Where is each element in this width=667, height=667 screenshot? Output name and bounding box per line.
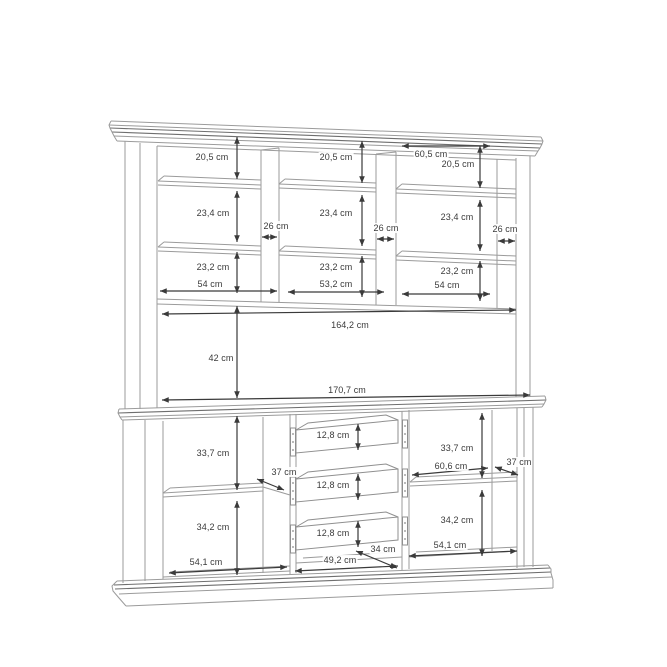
dim-upper-right-width: 54 cm: [433, 280, 460, 290]
dim-lower-left-depth: 37 cm: [270, 467, 297, 477]
dim-lower-left-width: 54,1 cm: [189, 557, 224, 567]
dim-lower-left-upper-height: 33,7 cm: [196, 448, 231, 458]
dim-open-inner-width: 164,2 cm: [330, 320, 370, 330]
dim-lower-left-lower-height: 34,2 cm: [196, 522, 231, 532]
dim-drawer-depth: 34 cm: [369, 544, 396, 554]
dim-open-height: 42 cm: [207, 353, 234, 363]
dim-upper-right-depth: 26 cm: [491, 224, 518, 234]
dim-upper-right-bottom-height: 23,2 cm: [440, 266, 475, 276]
dim-upper-left-top-height: 20,5 cm: [195, 152, 230, 162]
dim-upper-left-width: 54 cm: [196, 279, 223, 289]
dim-drawer3-height: 12,8 cm: [316, 528, 351, 538]
dim-lower-right-lower-height: 34,2 cm: [440, 515, 475, 525]
dim-drawer1-height: 12,8 cm: [316, 430, 351, 440]
dim-drawer-bay-width: 49,2 cm: [323, 555, 358, 565]
dim-upper-right-top-height: 20,5 cm: [441, 159, 476, 169]
dim-lower-right-depth: 37 cm: [505, 457, 532, 467]
dim-upper-left-depth: 26 cm: [262, 221, 289, 231]
hutch-cornice: [109, 121, 543, 156]
dim-upper-left-middle-height: 23,4 cm: [196, 208, 231, 218]
dim-lower-right-shelf-width: 60,6 cm: [434, 461, 469, 471]
dim-upper-center-middle-height: 23,4 cm: [319, 208, 354, 218]
dim-upper-left-bottom-height: 23,2 cm: [196, 262, 231, 272]
dim-open-outer-width: 170,7 cm: [327, 385, 367, 395]
dim-lower-right-upper-height: 33,7 cm: [440, 443, 475, 453]
dim-upper-center-top-height: 20,5 cm: [319, 152, 354, 162]
dim-upper-right-opening-width: 60,5 cm: [414, 149, 449, 159]
cabinet-line-art: [0, 0, 667, 667]
dim-drawer2-height: 12,8 cm: [316, 480, 351, 490]
dim-upper-center-bottom-height: 23,2 cm: [319, 262, 354, 272]
dim-upper-center-width: 53,2 cm: [319, 279, 354, 289]
dim-upper-center-depth: 26 cm: [372, 223, 399, 233]
furniture-dimension-drawing: 20,5 cm 20,5 cm 60,5 cm 20,5 cm 23,4 cm …: [0, 0, 667, 667]
dim-upper-right-middle-height: 23,4 cm: [440, 212, 475, 222]
dim-lower-right-width: 54,1 cm: [433, 540, 468, 550]
